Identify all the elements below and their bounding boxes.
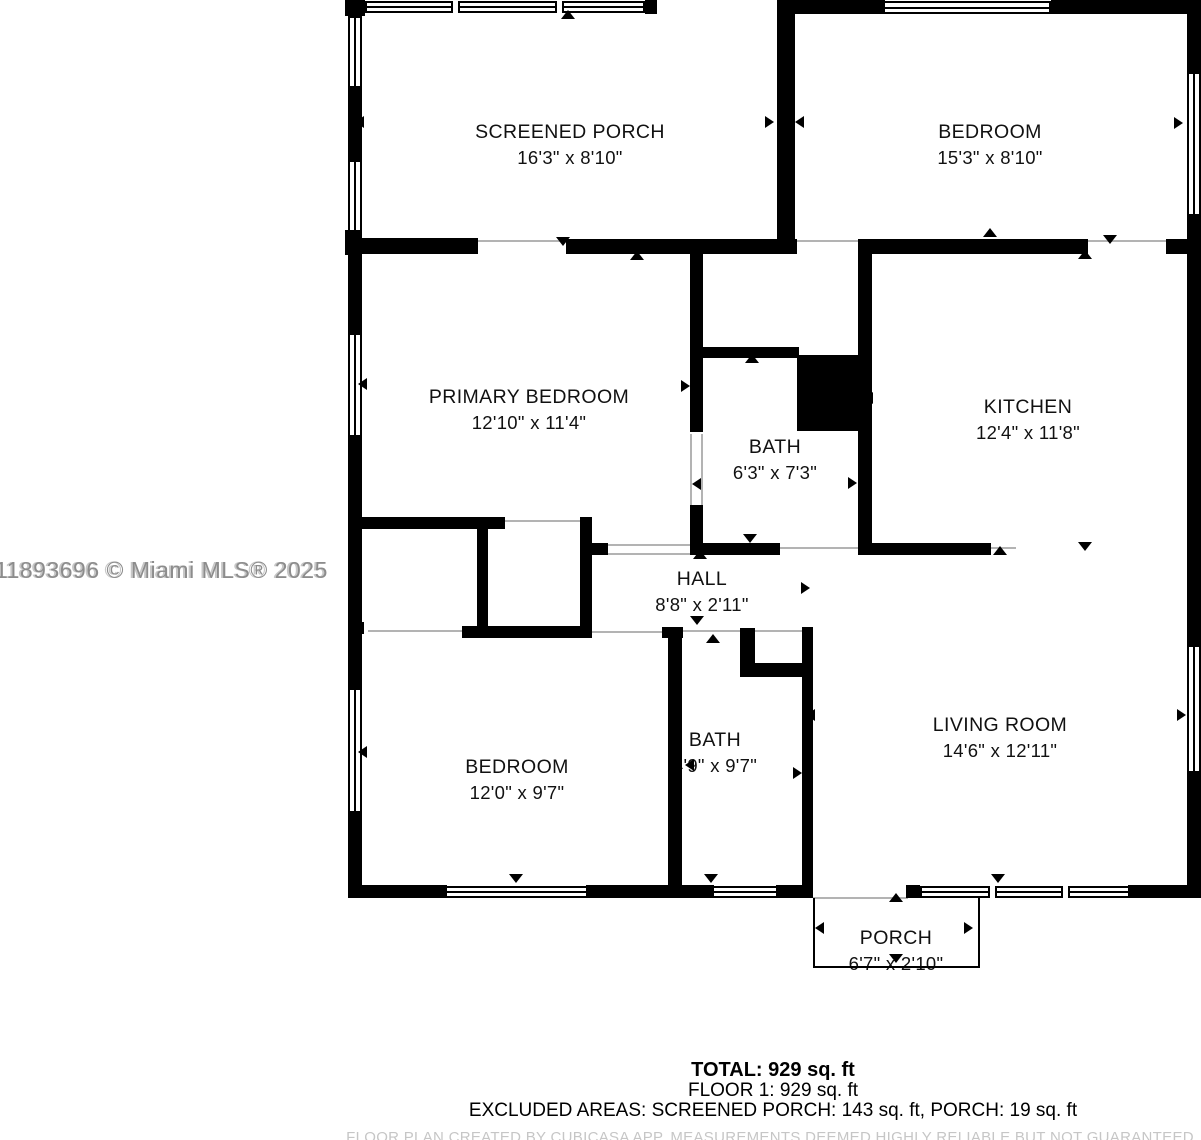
wall-segment (462, 626, 592, 638)
window-mullion (1061, 886, 1070, 898)
door-threshold (795, 240, 860, 242)
wall-segment (1051, 0, 1201, 14)
door-direction-arrow (991, 874, 1005, 883)
room-label: BATH6'3" x 7'3" (733, 434, 817, 486)
door-direction-arrow (1103, 235, 1117, 244)
room-label: KITCHEN12'4" x 11'8" (976, 394, 1080, 446)
room-dimensions: 14'6" x 12'11" (933, 738, 1067, 764)
room-dimensions: 8'8" x 2'11" (655, 592, 748, 618)
room-label: HALL8'8" x 2'11" (655, 566, 748, 618)
room-dimensions: 15'3" x 8'10" (937, 145, 1042, 171)
wall-segment (566, 239, 797, 254)
wall-segment (592, 543, 608, 555)
wall-segment (668, 638, 682, 885)
wall-segment (695, 543, 780, 555)
wall-segment (586, 885, 714, 898)
wall-segment (348, 255, 362, 335)
room-name: KITCHEN (976, 394, 1080, 420)
room-label: BEDROOM12'0" x 9'7" (465, 754, 569, 806)
door-direction-arrow (704, 874, 718, 883)
wall-segment (797, 355, 863, 431)
wall-segment (906, 885, 920, 898)
door-threshold (1088, 240, 1168, 242)
window-mullion (451, 1, 460, 13)
wall-segment (645, 0, 657, 14)
room-name: LIVING ROOM (933, 712, 1067, 738)
window (883, 1, 1051, 14)
wall-segment (777, 0, 795, 253)
door-direction-arrow (681, 380, 690, 392)
door-direction-arrow (765, 116, 774, 128)
porch-outline (813, 966, 980, 968)
room-dimensions: 12'0" x 9'7" (465, 780, 569, 806)
room-label: PRIMARY BEDROOM12'10" x 11'4" (429, 384, 629, 436)
door-direction-arrow (964, 922, 973, 934)
door-threshold (368, 630, 462, 632)
door-direction-arrow (806, 709, 815, 721)
door-direction-arrow (743, 534, 757, 543)
room-label: SCREENED PORCH16'3" x 8'10" (475, 119, 665, 171)
total-area-text: TOTAL: 929 sq. ft (469, 1060, 1077, 1080)
wall-segment (345, 230, 362, 255)
door-direction-arrow (556, 237, 570, 246)
room-label: LIVING ROOM14'6" x 12'11" (933, 712, 1067, 764)
wall-segment (1166, 239, 1201, 254)
room-name: PORCH (849, 925, 944, 951)
door-direction-arrow (692, 478, 701, 490)
door-direction-arrow (1078, 542, 1092, 551)
wall-segment (345, 0, 365, 16)
door-threshold (690, 434, 692, 506)
wall-segment (872, 543, 991, 555)
room-name: SCREENED PORCH (475, 119, 665, 145)
door-direction-arrow (509, 874, 523, 883)
wall-segment (1187, 214, 1201, 648)
window (1187, 72, 1201, 216)
wall-segment (1187, 0, 1201, 74)
room-dimensions: 12'4" x 11'8" (976, 420, 1080, 446)
door-direction-arrow (358, 746, 367, 758)
door-direction-arrow (889, 893, 903, 902)
window (348, 16, 362, 88)
room-name: BEDROOM (937, 119, 1042, 145)
room-dimensions: 12'10" x 11'4" (429, 410, 629, 436)
door-direction-arrow (801, 582, 810, 594)
door-threshold (592, 631, 662, 633)
door-threshold (477, 240, 567, 242)
wall-segment (1187, 771, 1201, 898)
wall-segment (580, 517, 592, 638)
door-threshold (701, 434, 703, 506)
door-threshold (755, 630, 802, 632)
wall-segment (690, 254, 703, 432)
door-direction-arrow (848, 477, 857, 489)
wall-segment (795, 0, 885, 14)
room-label: PORCH6'7" x 2'10" (849, 925, 944, 977)
room-name: BEDROOM (465, 754, 569, 780)
door-direction-arrow (693, 550, 707, 559)
door-direction-arrow (358, 378, 367, 390)
room-label: BATH4'9" x 9'7" (673, 727, 757, 779)
door-direction-arrow (864, 392, 873, 404)
door-direction-arrow (793, 767, 802, 779)
room-name: PRIMARY BEDROOM (429, 384, 629, 410)
room-name: BATH (673, 727, 757, 753)
door-direction-arrow (1078, 250, 1092, 259)
wall-segment (348, 885, 447, 898)
floor1-area-text: FLOOR 1: 929 sq. ft (469, 1081, 1077, 1100)
door-direction-arrow (993, 546, 1007, 555)
door-direction-arrow (1177, 709, 1186, 721)
area-summary: TOTAL: 929 sq. ft FLOOR 1: 929 sq. ft EX… (469, 1060, 1077, 1120)
door-direction-arrow (685, 759, 694, 771)
excluded-areas-text: EXCLUDED AREAS: SCREENED PORCH: 143 sq. … (469, 1101, 1077, 1120)
door-threshold (780, 547, 860, 549)
window (1187, 645, 1201, 773)
room-name: HALL (655, 566, 748, 592)
window (712, 886, 778, 898)
room-name: BATH (733, 434, 817, 460)
wall-segment (802, 627, 813, 885)
door-direction-arrow (561, 10, 575, 19)
wall-segment (858, 239, 1088, 254)
wall-segment (477, 517, 488, 633)
room-dimensions: 16'3" x 8'10" (475, 145, 665, 171)
window (920, 886, 1130, 898)
wall-segment (776, 885, 813, 898)
wall-segment (362, 238, 478, 254)
door-direction-arrow (795, 116, 804, 128)
wall-segment (355, 622, 364, 634)
door-threshold (608, 553, 692, 555)
wall-segment (1128, 885, 1201, 898)
disclaimer-text: FLOOR PLAN CREATED BY CUBICASA APP. MEAS… (346, 1129, 1194, 1140)
door-direction-arrow (745, 354, 759, 363)
door-threshold (683, 630, 740, 632)
door-direction-arrow (355, 116, 364, 128)
door-threshold (608, 544, 692, 546)
wall-segment (348, 437, 362, 690)
door-direction-arrow (889, 954, 903, 963)
watermark: 11893696 © Miami MLS® 2025 (0, 557, 328, 584)
porch-outline (978, 898, 980, 968)
door-direction-arrow (983, 228, 997, 237)
wall-segment (662, 627, 683, 638)
room-dimensions: 6'3" x 7'3" (733, 460, 817, 486)
window (365, 1, 645, 13)
room-label: BEDROOM15'3" x 8'10" (937, 119, 1042, 171)
door-direction-arrow (1174, 117, 1183, 129)
window (348, 160, 362, 232)
door-direction-arrow (630, 251, 644, 260)
window-mullion (988, 886, 997, 898)
window (445, 886, 588, 898)
door-threshold (505, 520, 582, 522)
floor-plan-page: SCREENED PORCH16'3" x 8'10"BEDROOM15'3" … (0, 0, 1201, 1140)
wall-segment (740, 628, 755, 677)
door-direction-arrow (706, 634, 720, 643)
door-direction-arrow (815, 922, 824, 934)
door-direction-arrow (509, 626, 523, 635)
door-direction-arrow (690, 616, 704, 625)
